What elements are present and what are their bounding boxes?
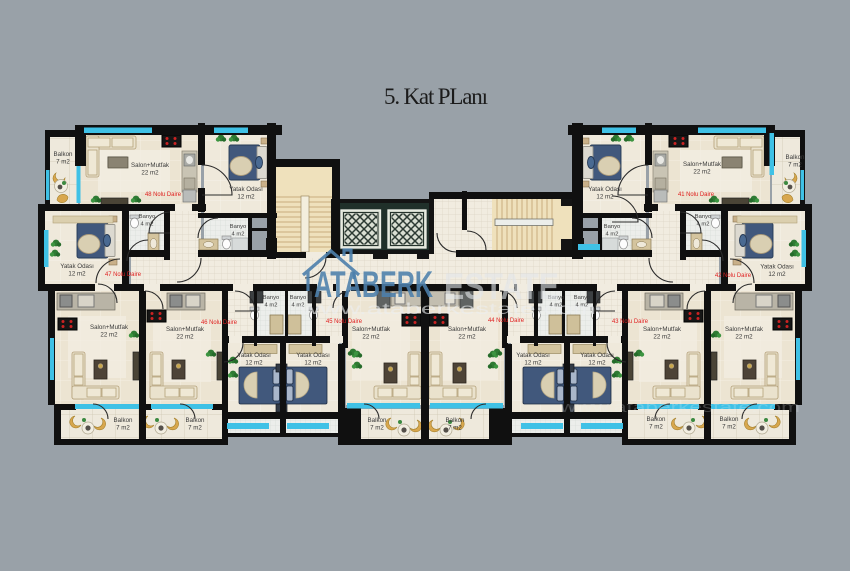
- svg-text:ATABERK: ATABERK: [314, 264, 433, 305]
- svg-text:4 m2: 4 m2: [265, 303, 278, 309]
- svg-text:Salon+Mutfak: Salon+Mutfak: [166, 326, 205, 333]
- svg-text:Balkon: Balkon: [720, 416, 739, 423]
- svg-text:22 m2: 22 m2: [653, 334, 671, 341]
- svg-text:12 m2: 12 m2: [245, 360, 263, 367]
- svg-text:12 m2: 12 m2: [68, 271, 86, 278]
- svg-text:Balkon: Balkon: [114, 417, 133, 424]
- svg-text:Yatak Odası: Yatak Odası: [229, 186, 263, 193]
- svg-text:7 m2: 7 m2: [649, 424, 663, 431]
- svg-text:7 m2: 7 m2: [448, 425, 462, 432]
- svg-text:Banyo: Banyo: [263, 295, 279, 301]
- svg-text:48 Nolu Daire: 48 Nolu Daire: [145, 191, 181, 198]
- svg-text:Salon+Mutfak: Salon+Mutfak: [643, 326, 682, 333]
- svg-text:47 Nolu Daire: 47 Nolu Daire: [105, 271, 141, 278]
- svg-text:Balkon: Balkon: [368, 417, 387, 424]
- svg-text:45 Nolu Daire: 45 Nolu Daire: [326, 318, 362, 325]
- svg-text:7 m2: 7 m2: [188, 425, 202, 432]
- svg-text:www.ataberkestate.com: www.ataberkestate.com: [298, 301, 596, 318]
- svg-text:4 m2: 4 m2: [606, 232, 619, 238]
- svg-text:Salon+Mutfak: Salon+Mutfak: [683, 161, 722, 168]
- svg-text:12 m2: 12 m2: [596, 194, 614, 201]
- svg-text:Banyo: Banyo: [139, 214, 155, 220]
- svg-text:Yatak Odası: Yatak Odası: [237, 352, 271, 359]
- svg-text:44 Nolu Daire: 44 Nolu Daire: [488, 317, 524, 324]
- svg-text:43 Nolu Daire: 43 Nolu Daire: [612, 318, 648, 325]
- svg-text:5. Kat PLanı: 5. Kat PLanı: [384, 84, 488, 109]
- svg-text:12 m2: 12 m2: [524, 360, 542, 367]
- svg-text:Salon+Mutfak: Salon+Mutfak: [131, 162, 170, 169]
- svg-text:Salon+Mutfak: Salon+Mutfak: [448, 326, 487, 333]
- svg-text:22 m2: 22 m2: [735, 334, 753, 341]
- svg-text:Yatak Odası: Yatak Odası: [760, 264, 794, 271]
- svg-text:Balkon: Balkon: [647, 416, 666, 423]
- svg-text:Yatak Odası: Yatak Odası: [516, 352, 550, 359]
- svg-text:12 m2: 12 m2: [237, 194, 255, 201]
- svg-text:Banyo: Banyo: [695, 214, 711, 220]
- svg-text:12 m2: 12 m2: [768, 271, 786, 278]
- svg-text:7 m2: 7 m2: [116, 425, 130, 432]
- svg-text:4 m2: 4 m2: [232, 232, 245, 238]
- svg-text:Salon+Mutfak: Salon+Mutfak: [725, 326, 764, 333]
- svg-text:4 m2: 4 m2: [697, 222, 710, 228]
- svg-text:41 Nolu Daire: 41 Nolu Daire: [678, 191, 714, 198]
- svg-text:22 m2: 22 m2: [362, 334, 380, 341]
- svg-text:12 m2: 12 m2: [588, 360, 606, 367]
- svg-text:Yatak Odası: Yatak Odası: [588, 186, 622, 193]
- svg-text:46 Nolu Daire: 46 Nolu Daire: [201, 319, 237, 326]
- svg-text:22 m2: 22 m2: [458, 334, 476, 341]
- svg-text:Salon+Mutfak: Salon+Mutfak: [352, 326, 391, 333]
- svg-text:12 m2: 12 m2: [304, 360, 322, 367]
- svg-text:7 m2: 7 m2: [56, 159, 70, 166]
- svg-text:Banyo: Banyo: [230, 224, 246, 230]
- svg-text:7 m2: 7 m2: [722, 424, 736, 431]
- svg-text:22 m2: 22 m2: [141, 170, 159, 177]
- svg-text:7 m2: 7 m2: [788, 162, 802, 169]
- svg-text:22 m2: 22 m2: [176, 334, 194, 341]
- svg-text:22 m2: 22 m2: [100, 332, 118, 339]
- svg-text:Balkon: Balkon: [446, 417, 465, 424]
- svg-text:7 m2: 7 m2: [370, 425, 384, 432]
- svg-text:www.ataberkestate.com: www.ataberkestate.com: [558, 399, 800, 416]
- svg-text:Salon+Mutfak: Salon+Mutfak: [90, 324, 129, 331]
- svg-text:Yatak Odası: Yatak Odası: [580, 352, 614, 359]
- svg-text:Balkon: Balkon: [186, 417, 205, 424]
- svg-text:42 Nolu Daire: 42 Nolu Daire: [715, 272, 751, 279]
- svg-text:Balkon: Balkon: [786, 154, 805, 161]
- svg-text:22 m2: 22 m2: [693, 169, 711, 176]
- svg-text:Banyo: Banyo: [604, 224, 620, 230]
- svg-text:Yatak Odası: Yatak Odası: [296, 352, 330, 359]
- svg-text:4 m2: 4 m2: [141, 222, 154, 228]
- svg-text:Balkon: Balkon: [54, 151, 73, 158]
- svg-text:Yatak Odası: Yatak Odası: [60, 263, 94, 270]
